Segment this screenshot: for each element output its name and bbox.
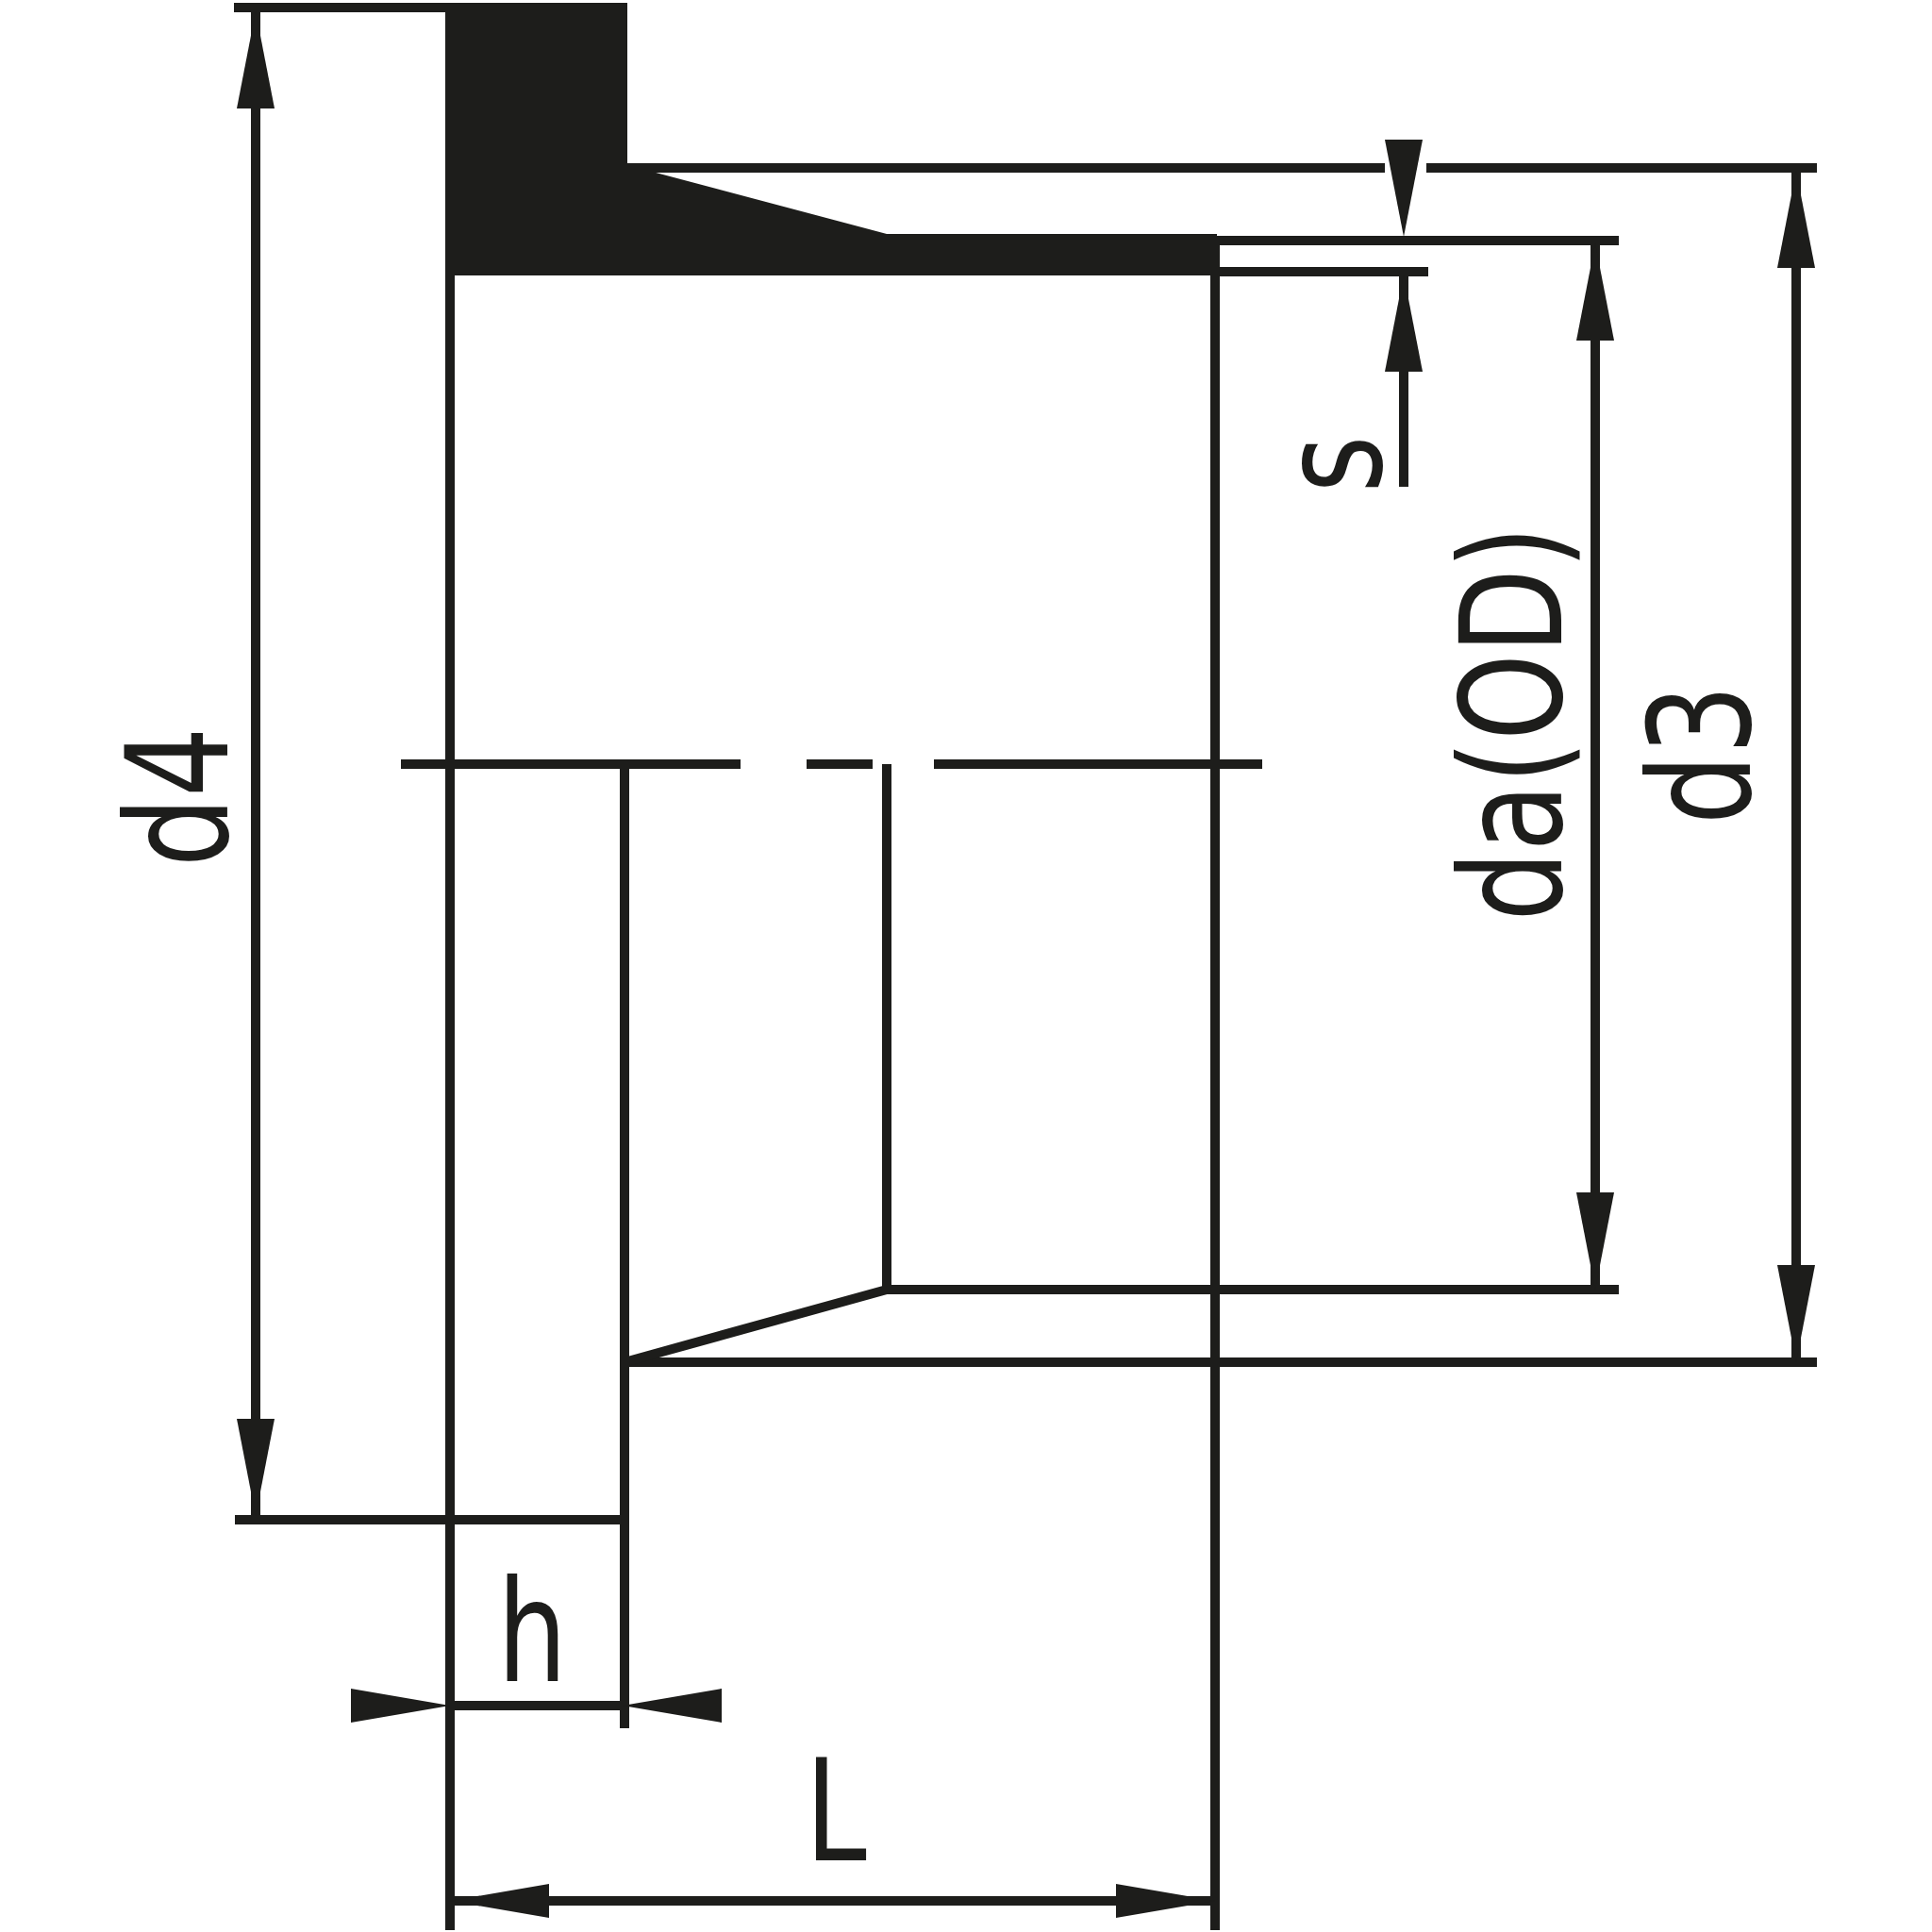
s-lower-arrow-icon [1385, 275, 1423, 372]
d4-dimension-label: d4 [95, 727, 260, 868]
section-fill-collar-and-pipe-wall [445, 3, 1217, 275]
da-od-bottom-arrow-icon [1576, 1192, 1614, 1290]
da-od-top-arrow-icon [1576, 243, 1614, 341]
cone-bottom-edge-line [625, 1290, 887, 1362]
technical-drawing-canvas: d4 s da(OD) d3 h L [0, 0, 1932, 1932]
h-left-arrow-icon [351, 1689, 450, 1723]
h-right-arrow-icon [623, 1689, 722, 1723]
l-right-arrow-icon [1116, 1884, 1215, 1918]
l-left-arrow-icon [450, 1884, 549, 1918]
s-upper-arrow-icon [1385, 140, 1423, 237]
d3-dimension-label: d3 [1618, 685, 1783, 825]
s-dimension-label: s [1249, 436, 1414, 493]
stub-end-section-drawing: d4 s da(OD) d3 h L [0, 0, 1932, 1932]
d4-top-arrow-icon [237, 11, 275, 108]
d3-top-arrow-icon [1777, 171, 1815, 268]
d4-bottom-arrow-icon [237, 1419, 275, 1516]
d3-bottom-arrow-icon [1777, 1265, 1815, 1362]
h-dimension-label: h [497, 1549, 567, 1714]
l-dimension-label: L [805, 1728, 866, 1893]
da-od-dimension-label: da(OD) [1429, 525, 1594, 921]
